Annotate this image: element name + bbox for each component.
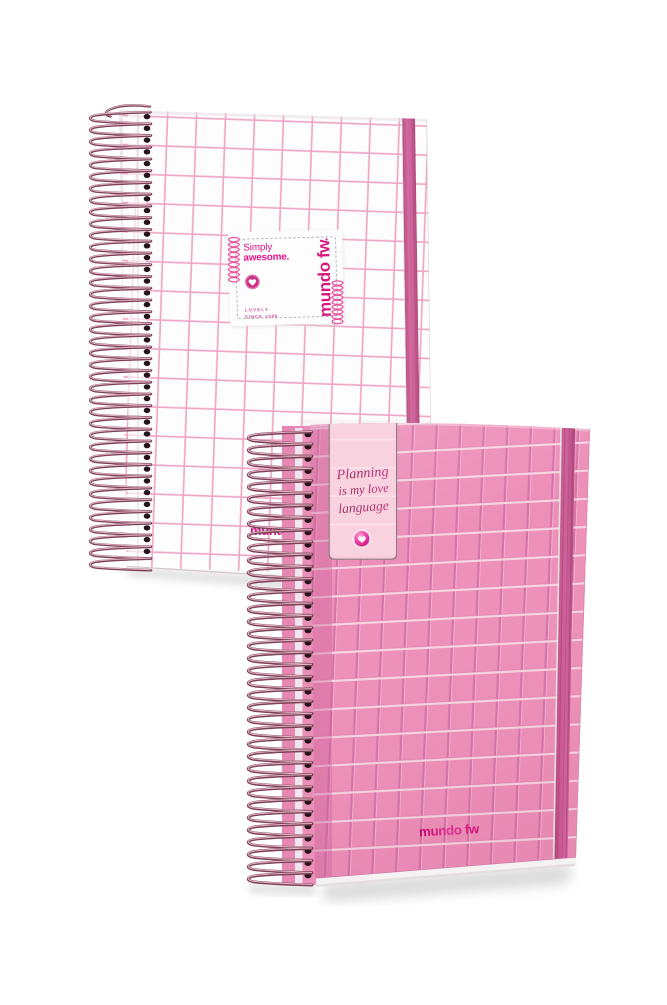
svg-text:mundo fw: mundo fw (419, 821, 481, 839)
svg-text:awesome.: awesome. (243, 252, 289, 264)
svg-text:LOVELY: LOVELY (245, 307, 269, 313)
svg-text:SINCE 1980: SINCE 1980 (245, 314, 279, 320)
svg-text:mundo fw: mundo fw (314, 239, 335, 318)
